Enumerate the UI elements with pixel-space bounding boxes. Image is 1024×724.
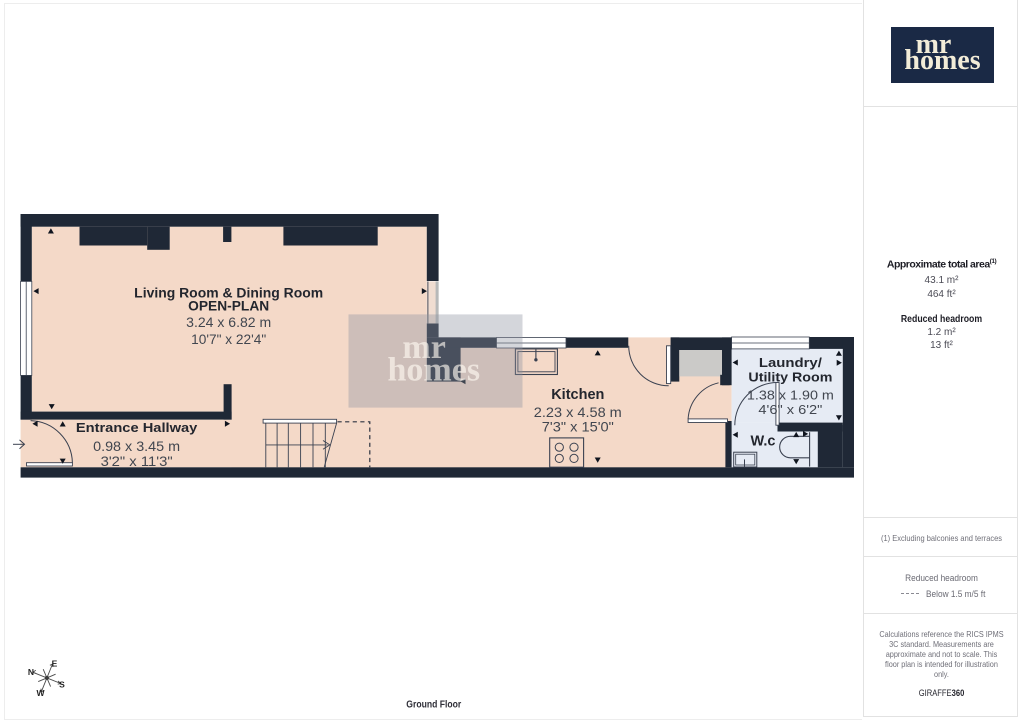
svg-text:E: E <box>52 659 58 669</box>
svg-text:S: S <box>59 679 65 689</box>
svg-text:Utility Room: Utility Room <box>748 369 832 384</box>
svg-text:1.38 x 1.90 m: 1.38 x 1.90 m <box>747 388 834 403</box>
svg-text:Entrance Hallway: Entrance Hallway <box>76 421 198 435</box>
svg-text:Laundry/: Laundry/ <box>759 355 822 370</box>
svg-text:homes: homes <box>388 351 481 388</box>
svg-text:Kitchen: Kitchen <box>551 387 604 403</box>
svg-text:W: W <box>36 688 45 698</box>
svg-text:N: N <box>28 667 34 677</box>
svg-text:Ground Floor: Ground Floor <box>406 700 461 711</box>
svg-text:0.98 x 3.45 m: 0.98 x 3.45 m <box>93 439 180 454</box>
svg-text:3.24 x 6.82 m: 3.24 x 6.82 m <box>186 315 271 330</box>
svg-text:10'7" x 22'4": 10'7" x 22'4" <box>191 332 266 347</box>
svg-text:2.23 x 4.58 m: 2.23 x 4.58 m <box>534 405 622 420</box>
svg-text:4'6" x 6'2": 4'6" x 6'2" <box>758 402 822 417</box>
svg-text:OPEN-PLAN: OPEN-PLAN <box>188 299 269 314</box>
svg-text:3'2" x 11'3": 3'2" x 11'3" <box>101 454 173 469</box>
svg-text:W.c: W.c <box>751 434 776 450</box>
svg-text:7'3" x 15'0": 7'3" x 15'0" <box>542 420 614 435</box>
